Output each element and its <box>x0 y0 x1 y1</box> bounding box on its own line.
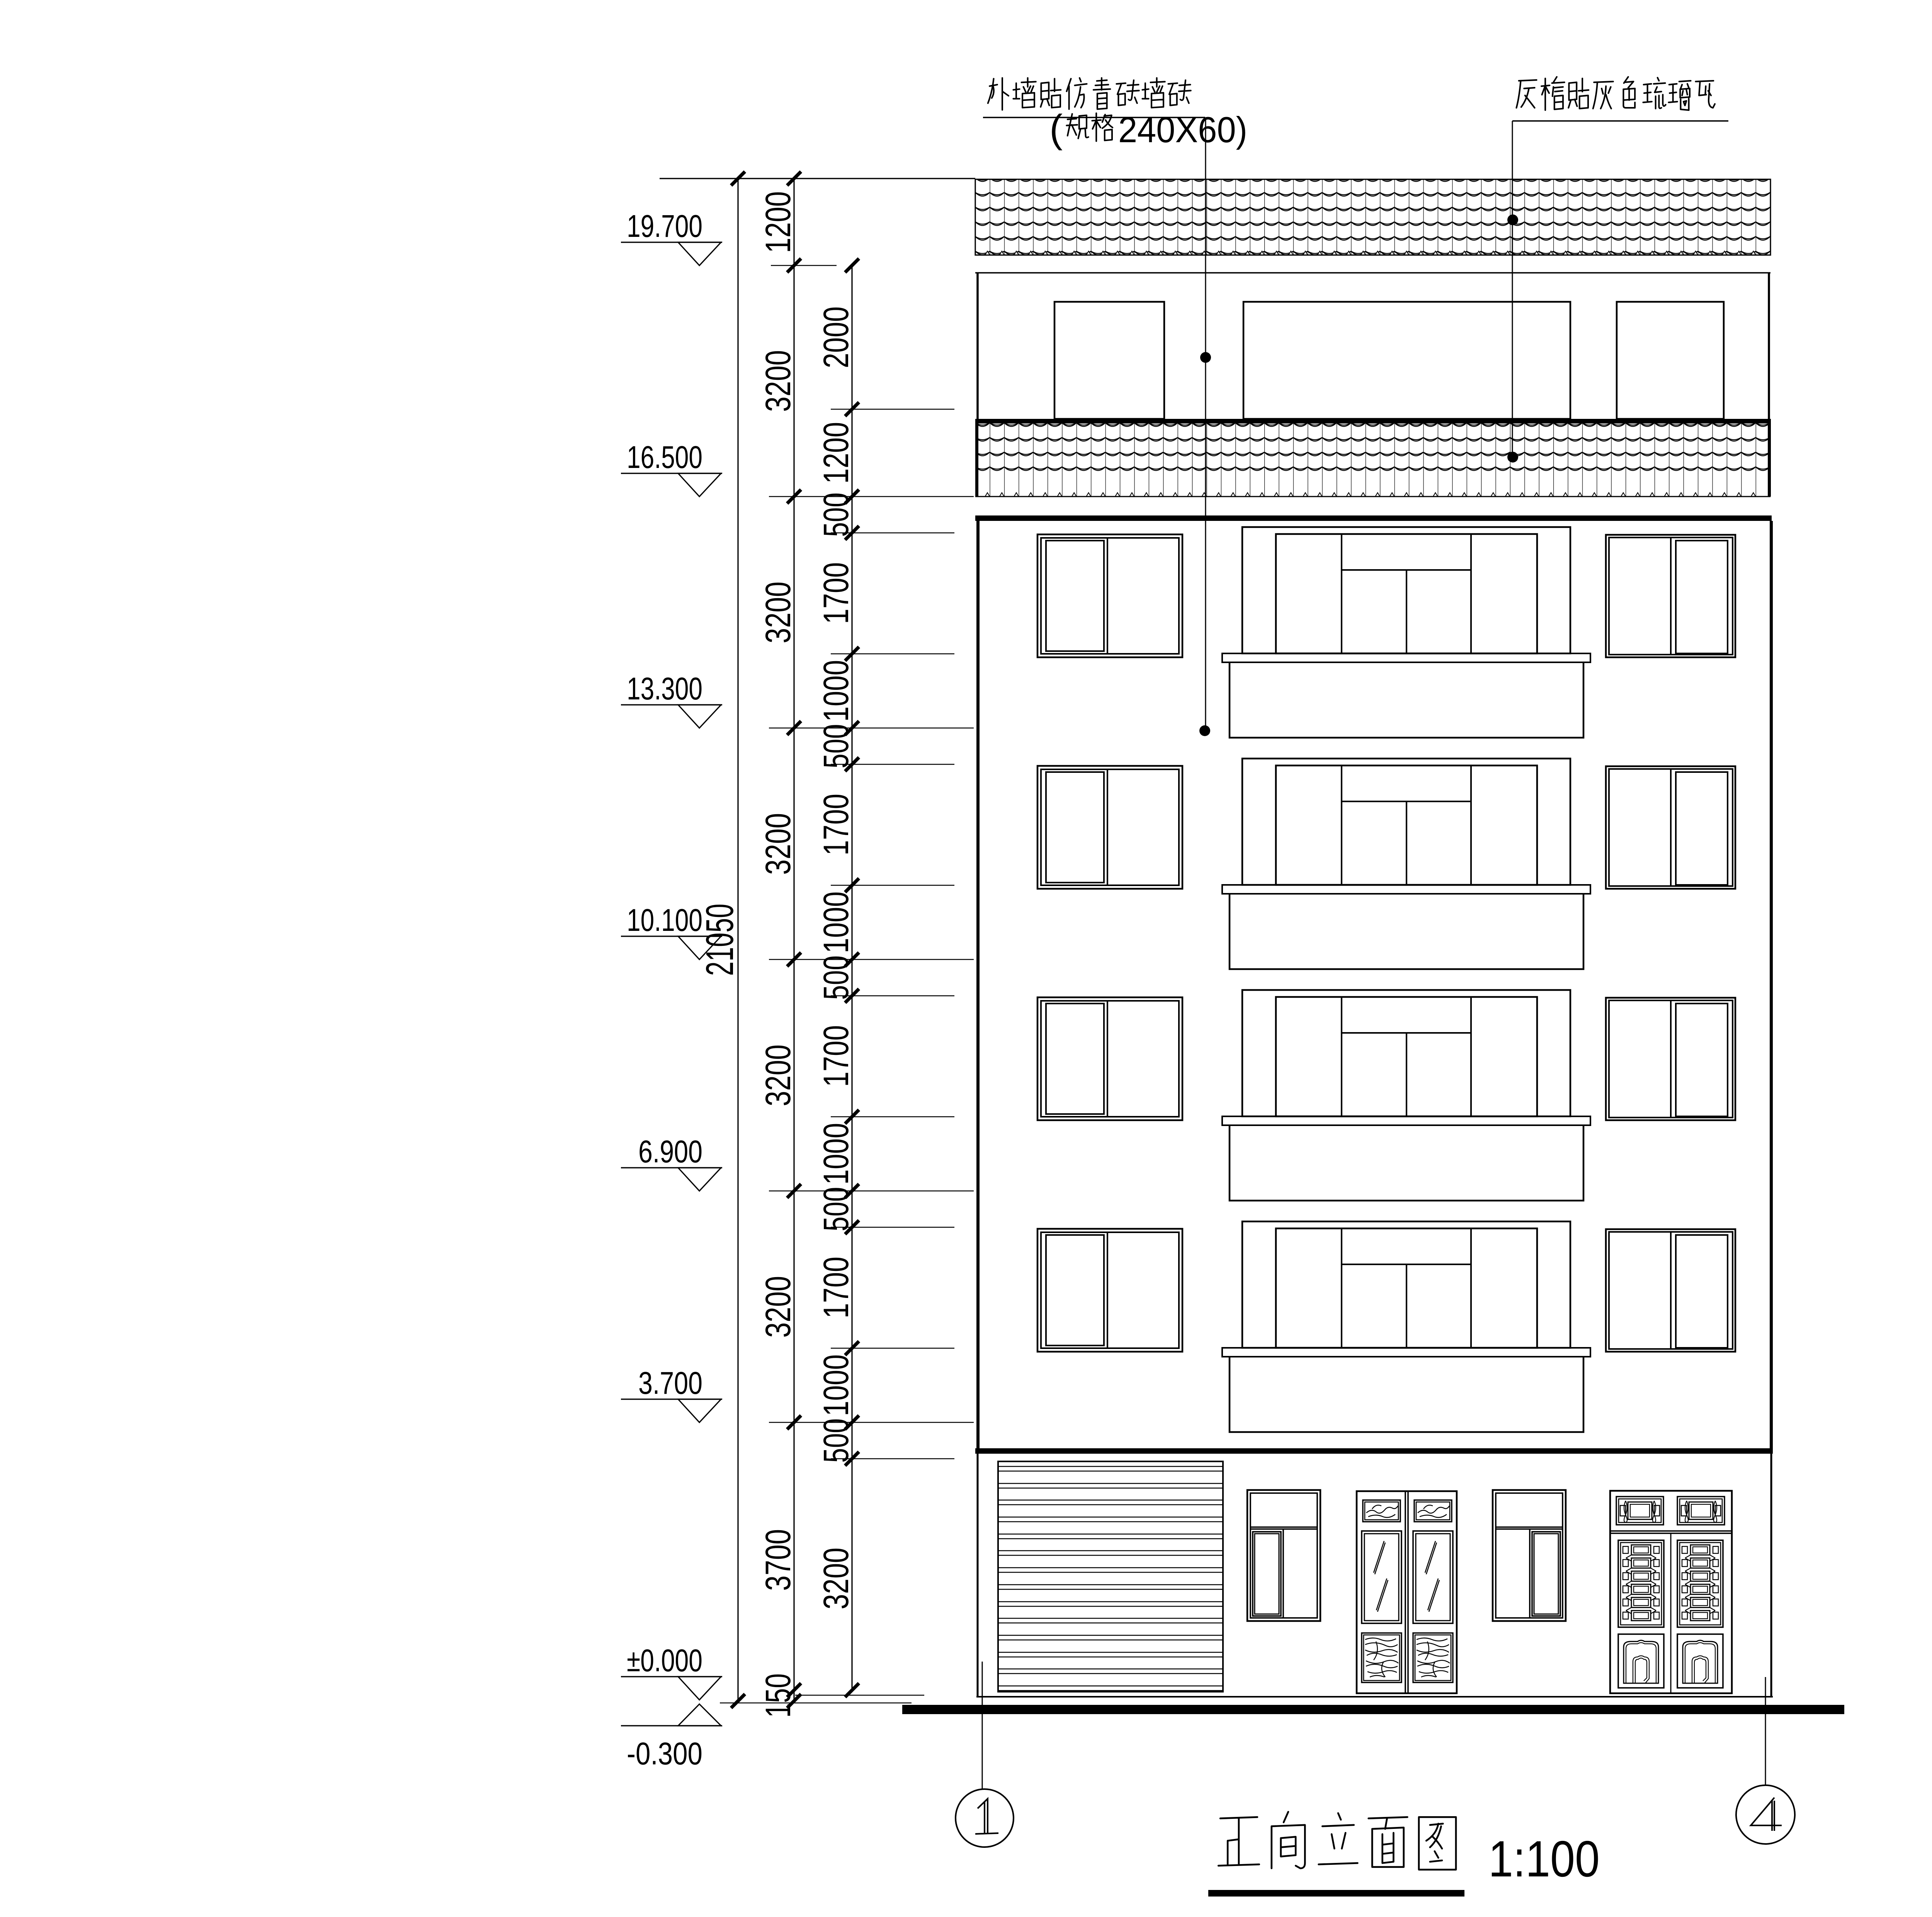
svg-text:1000: 1000 <box>816 660 856 722</box>
svg-text:1200: 1200 <box>816 422 856 484</box>
svg-text:150: 150 <box>759 1674 798 1718</box>
svg-text:21050: 21050 <box>698 904 742 976</box>
svg-text:16.500: 16.500 <box>627 440 702 475</box>
svg-text:-0.300: -0.300 <box>627 1736 702 1771</box>
svg-text:1000: 1000 <box>816 1123 856 1185</box>
svg-text:3.700: 3.700 <box>638 1366 702 1401</box>
svg-text:3200: 3200 <box>759 1044 798 1106</box>
svg-text:3200: 3200 <box>759 813 798 875</box>
svg-text:1000: 1000 <box>816 891 856 953</box>
svg-text:1:100: 1:100 <box>1488 1830 1600 1887</box>
svg-text:19.700: 19.700 <box>627 209 702 244</box>
svg-text:1700: 1700 <box>816 1025 856 1087</box>
svg-text:1700: 1700 <box>816 794 856 856</box>
svg-text:±0.000: ±0.000 <box>627 1643 702 1678</box>
svg-text:3200: 3200 <box>816 1548 856 1609</box>
svg-text:3200: 3200 <box>759 350 798 412</box>
svg-text:500: 500 <box>816 1419 856 1463</box>
svg-text:(: ( <box>1049 107 1063 151</box>
svg-text:3200: 3200 <box>759 582 798 643</box>
svg-text:1200: 1200 <box>759 191 798 253</box>
svg-text:500: 500 <box>816 1187 856 1232</box>
svg-text:3200: 3200 <box>759 1276 798 1338</box>
svg-text:3700: 3700 <box>759 1529 798 1591</box>
svg-text:13.300: 13.300 <box>627 671 702 706</box>
svg-text:6.900: 6.900 <box>638 1134 702 1169</box>
svg-text:1700: 1700 <box>816 1257 856 1318</box>
svg-text:1700: 1700 <box>816 562 856 624</box>
svg-text:2000: 2000 <box>816 306 856 368</box>
svg-text:240X60): 240X60) <box>1118 109 1247 150</box>
svg-text:500: 500 <box>816 493 856 537</box>
svg-text:10.100: 10.100 <box>627 903 702 938</box>
svg-text:1000: 1000 <box>816 1354 856 1416</box>
svg-text:500: 500 <box>816 724 856 769</box>
svg-text:500: 500 <box>816 956 856 1000</box>
